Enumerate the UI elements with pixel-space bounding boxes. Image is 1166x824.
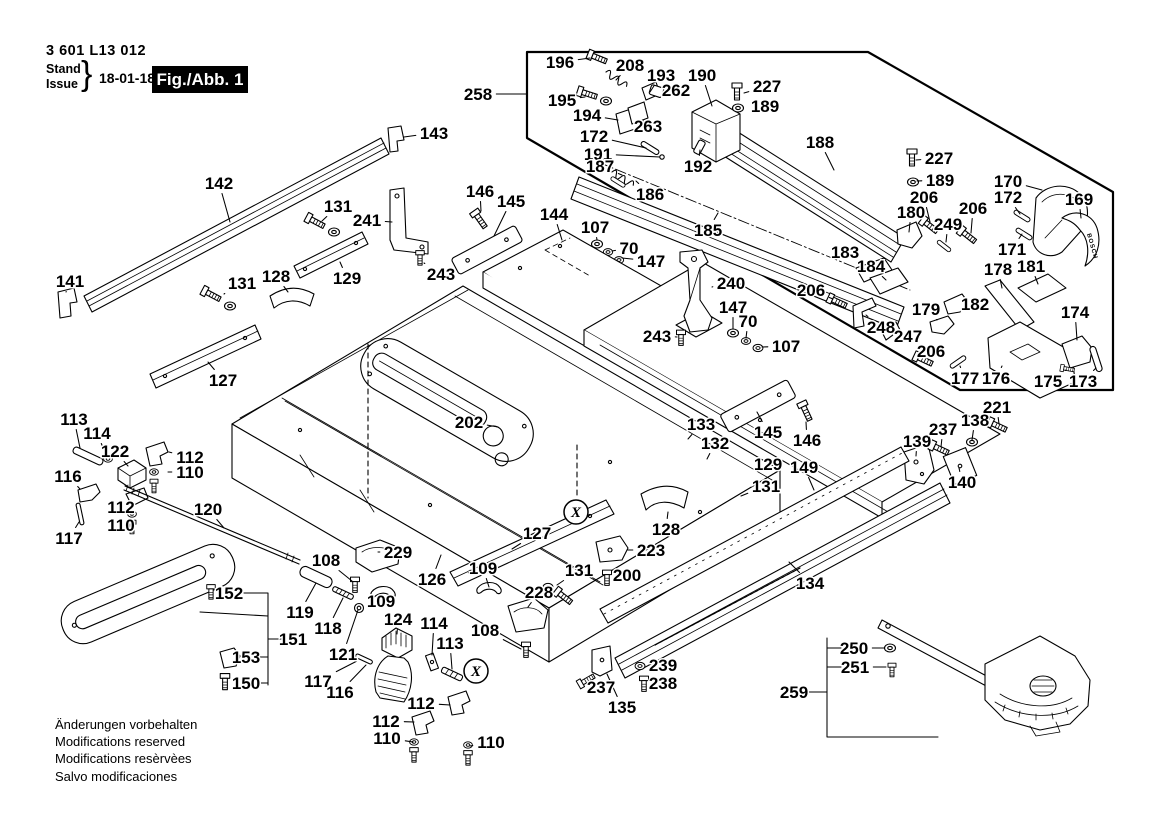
part-callout-200: 200 [613,566,641,585]
part-callout-237: 237 [929,420,957,439]
part-callout-131: 131 [565,561,593,580]
leader-line-143 [404,135,416,137]
part-callout-196: 196 [546,53,574,72]
part-callout-127: 127 [209,371,237,390]
leader-line-149 [809,478,814,491]
part-callout-126: 126 [418,570,446,589]
part-callout-177: 177 [951,369,979,388]
part-callout-240: 240 [717,274,745,293]
part-callout-206: 206 [959,199,987,218]
part-callout-153: 153 [232,648,260,667]
leader-line-175 [1065,370,1066,371]
leader-line-118 [333,598,343,618]
part-callout-110: 110 [373,729,400,748]
part-callout-118: 118 [314,619,341,638]
part-callout-107: 107 [772,337,800,356]
end-cap-143 [388,126,404,152]
part-callout-127: 127 [523,524,551,543]
part-callout-174: 174 [1061,303,1090,322]
part-callout-208: 208 [616,56,644,75]
part-callout-110: 110 [477,733,504,752]
wedge-128a [270,288,314,308]
part-callout-150: 150 [232,674,260,693]
part-callout-114: 114 [420,614,448,633]
part-callout-183: 183 [831,243,859,262]
part-callout-134: 134 [796,574,825,593]
leader-line-179 [937,320,938,321]
circled-reference-mark: X [564,500,588,524]
part-callout-70: 70 [739,312,758,331]
part-callout-176: 176 [982,369,1010,388]
leader-line-174 [1076,323,1077,341]
part-callout-238: 238 [649,674,677,693]
leader-line-176 [1001,366,1002,368]
part-callout-144: 144 [540,205,569,224]
part-callout-135: 135 [608,698,636,717]
part-callout-181: 181 [1017,257,1045,276]
part-callout-145: 145 [497,192,525,211]
leader-line-108 [339,571,352,582]
leader-line-70 [612,250,616,251]
exploded-view-drawing: BOSCH [0,0,1166,824]
part-callout-116: 116 [326,683,353,702]
part-callout-262: 262 [662,81,690,100]
part-callout-132: 132 [701,434,729,453]
leader-line-121 [347,610,358,644]
part-callout-122: 122 [101,442,129,461]
part-callout-259: 259 [780,683,808,702]
leader-line-113 [451,654,452,670]
pin-177 [949,355,966,369]
part-callout-228: 228 [525,583,553,602]
leader-line-190 [705,86,712,107]
part-callout-124: 124 [384,610,413,629]
end-cap-141 [58,288,77,318]
leader-line-241 [385,222,392,223]
leader-line-119 [306,583,316,602]
part-callout-239: 239 [649,656,677,675]
part-callout-241: 241 [353,211,381,230]
part-callout-263: 263 [634,117,662,136]
part-callout-142: 142 [205,174,233,193]
leader-line-114 [432,634,433,656]
part-callout-172: 172 [994,188,1022,207]
leader-line-113 [76,430,80,449]
part-callout-146: 146 [466,182,494,201]
part-callout-119: 119 [286,603,313,622]
part-callout-129: 129 [333,269,361,288]
svg-text:X: X [570,505,582,521]
part-callout-117: 117 [55,529,82,548]
leader-line-187 [618,174,622,176]
part-callout-149: 149 [790,458,818,477]
part-callout-258: 258 [464,85,492,104]
part-callout-113: 113 [436,634,463,653]
part-callout-178: 178 [984,260,1012,279]
bracket-151 [200,593,285,685]
part-callout-152: 152 [215,584,243,603]
part-callout-175: 175 [1034,372,1062,391]
part-callout-112: 112 [107,498,134,517]
part-callout-187: 187 [586,157,614,176]
part-callout-227: 227 [753,77,781,96]
leader-line-129 [340,262,342,268]
leader-line-116 [350,665,366,682]
part-callout-70: 70 [620,239,639,258]
part-callout-131: 131 [228,274,256,293]
part-callout-151: 151 [279,630,307,649]
part-callout-237: 237 [587,678,615,697]
bracket-259 [808,638,938,737]
part-callout-169: 169 [1065,190,1093,209]
part-callout-227: 227 [925,149,953,168]
part-callout-120: 120 [194,500,222,519]
svg-text:X: X [470,664,482,680]
part-callout-248: 248 [867,318,895,337]
part-callout-206: 206 [797,281,825,300]
leader-line-185 [714,213,718,220]
part-callout-110: 110 [176,463,203,482]
part-callout-139: 139 [903,432,931,451]
part-callout-243: 243 [427,265,455,284]
part-callout-131: 131 [752,477,780,496]
screw-243a [416,251,425,265]
part-callout-223: 223 [637,541,665,560]
part-callout-243: 243 [643,327,671,346]
part-callout-108: 108 [312,551,340,570]
plate-181 [1018,274,1066,302]
leader-line-249 [946,235,947,243]
part-callout-128: 128 [652,520,680,539]
part-callout-251: 251 [841,658,869,677]
part-callout-229: 229 [384,543,412,562]
part-callout-188: 188 [806,133,834,152]
leader-line-206 [971,219,972,234]
rail-127a [150,325,261,388]
leader-line-131 [224,294,225,295]
part-callout-250: 250 [840,639,868,658]
leader-line-195 [580,97,585,98]
leader-line-170 [1026,186,1042,190]
part-callout-110: 110 [107,516,134,535]
leader-line-110 [470,746,473,747]
part-callout-107: 107 [581,218,609,237]
leader-line-243 [424,263,425,264]
part-callout-147: 147 [637,252,665,271]
part-callout-186: 186 [636,185,664,204]
part-callout-116: 116 [54,467,81,486]
leader-line-227 [744,92,749,93]
part-callout-143: 143 [420,124,448,143]
leader-line-127 [208,362,214,370]
part-callout-179: 179 [912,300,940,319]
u-bracket-241 [390,188,428,265]
part-callout-145: 145 [754,423,782,442]
leader-line-131 [322,217,327,222]
part-callout-133: 133 [687,415,715,434]
part-callout-194: 194 [573,106,602,125]
part-callout-112: 112 [407,694,434,713]
leader-line-188 [825,153,834,171]
leader-line-116 [78,487,80,490]
part-callout-140: 140 [948,473,976,492]
screw-146a [470,208,490,230]
part-callout-108: 108 [471,621,499,640]
part-callout-129: 129 [754,455,782,474]
leader-line-117 [76,522,79,528]
part-callout-173: 173 [1069,372,1097,391]
part-callout-109: 109 [469,559,497,578]
part-callout-221: 221 [983,398,1011,417]
circled-reference-mark: X [464,659,488,683]
part-callout-172: 172 [580,127,608,146]
part-callout-109: 109 [367,592,395,611]
leader-line-177 [960,366,961,368]
leader-line-112 [439,704,450,705]
leader-line-192 [699,150,700,156]
part-callout-128: 128 [262,267,290,286]
leader-line-146 [481,202,482,212]
part-callout-182: 182 [961,295,989,314]
part-callout-189: 189 [751,97,779,116]
part-callout-206: 206 [917,342,945,361]
leader-line-142 [222,194,230,223]
part-callout-146: 146 [793,431,821,450]
miter-gauge-259 [808,620,1090,737]
part-callout-131: 131 [324,197,352,216]
part-callout-185: 185 [694,221,722,240]
leader-line-191 [616,155,660,157]
part-callout-192: 192 [684,157,712,176]
parts-diagram-page: 3 601 L13 012 Stand Issue } 18-01-18 Fig… [0,0,1166,824]
part-callout-184: 184 [857,257,886,276]
part-callout-202: 202 [455,413,483,432]
part-callout-114: 114 [83,424,111,443]
part-callout-121: 121 [329,645,357,664]
part-callout-190: 190 [688,66,716,85]
screw-150 [220,674,230,690]
part-callout-141: 141 [56,272,84,291]
leader-line-194 [605,118,618,120]
leader-line-186 [636,181,639,184]
leader-line-112 [169,452,172,453]
lock-knob-124 [375,628,412,702]
part-callout-180: 180 [897,203,925,222]
